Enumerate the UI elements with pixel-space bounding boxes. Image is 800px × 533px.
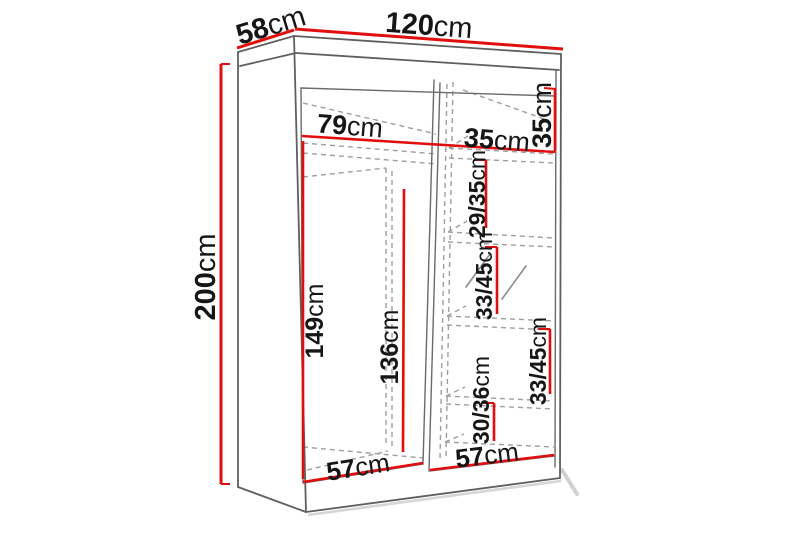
dim-hanging-height-label: 149cm — [301, 283, 329, 358]
dim-shelf-gap-4-label: 30/36cm — [468, 356, 494, 444]
diagram-canvas: 58cm 120cm 200cm 79cm 35cm 35cm 29/35cm … — [0, 0, 800, 533]
dimension-labels: 58cm 120cm 200cm 79cm 35cm 35cm 29/35cm … — [190, 0, 557, 486]
dim-right-door-label: 57cm — [454, 436, 521, 474]
dim-shelf-gap-1-label: 29/35cm — [464, 150, 490, 238]
dim-shelf-gap-2-label: 33/45cm — [471, 232, 497, 320]
wardrobe-dimension-diagram: 58cm 120cm 200cm 79cm 35cm 35cm 29/35cm … — [0, 0, 800, 533]
dim-width-label: 120cm — [384, 7, 473, 45]
dim-top-shelf-label: 35cm — [527, 82, 557, 148]
dim-left-door-label: 57cm — [324, 447, 392, 487]
dim-inner-height-label: 136cm — [376, 309, 404, 384]
dim-height-label: 200cm — [190, 233, 222, 320]
dim-left-section-width-label: 79cm — [316, 108, 384, 143]
dim-shelf-gap-3-label: 33/45cm — [525, 317, 551, 405]
dim-depth-label: 58cm — [232, 0, 309, 51]
